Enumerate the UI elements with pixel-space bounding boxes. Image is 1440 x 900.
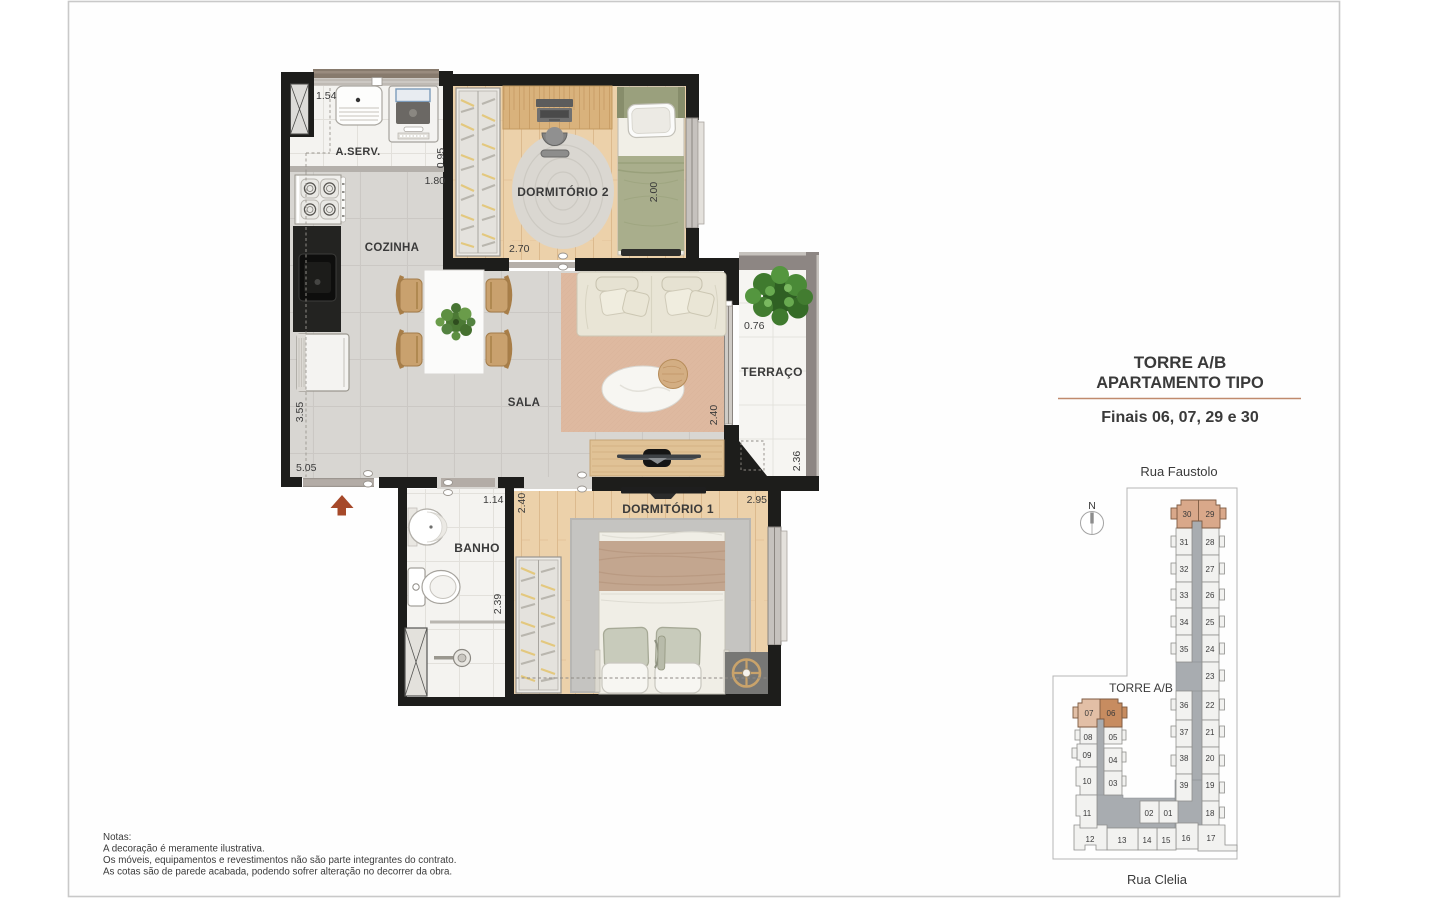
svg-text:20: 20 (1206, 754, 1215, 763)
svg-text:04: 04 (1109, 756, 1118, 765)
svg-text:32: 32 (1180, 565, 1189, 574)
svg-text:1.14: 1.14 (483, 494, 504, 506)
svg-text:2.00: 2.00 (648, 182, 660, 203)
svg-text:21: 21 (1206, 728, 1215, 737)
svg-text:DORMITÓRIO 1: DORMITÓRIO 1 (622, 501, 714, 516)
svg-text:3.55: 3.55 (294, 402, 306, 423)
svg-text:31: 31 (1180, 538, 1189, 547)
svg-text:10: 10 (1083, 777, 1092, 786)
svg-text:COZINHA: COZINHA (365, 242, 420, 254)
svg-text:07: 07 (1085, 709, 1094, 718)
svg-text:BANHO: BANHO (454, 541, 500, 555)
svg-text:TORRE A/B: TORRE A/B (1134, 353, 1227, 372)
svg-text:11: 11 (1083, 809, 1092, 818)
svg-text:1.80: 1.80 (425, 175, 446, 187)
svg-text:06: 06 (1107, 709, 1116, 718)
svg-text:15: 15 (1162, 836, 1171, 845)
svg-text:TERRAÇO: TERRAÇO (741, 365, 802, 379)
svg-text:0.76: 0.76 (744, 320, 765, 332)
svg-text:37: 37 (1180, 728, 1189, 737)
svg-text:As cotas são de parede acabada: As cotas são de parede acabada, podendo … (103, 867, 452, 878)
svg-text:SALA: SALA (508, 397, 541, 409)
svg-text:A.SERV.: A.SERV. (336, 146, 381, 158)
svg-text:N: N (1088, 500, 1096, 512)
svg-text:27: 27 (1206, 565, 1215, 574)
svg-text:14: 14 (1143, 836, 1152, 845)
svg-text:Rua Clelia: Rua Clelia (1127, 872, 1188, 887)
svg-text:17: 17 (1207, 834, 1216, 843)
svg-text:01: 01 (1164, 809, 1173, 818)
svg-text:34: 34 (1180, 618, 1189, 627)
svg-text:TORRE A/B: TORRE A/B (1109, 681, 1173, 695)
svg-text:2.36: 2.36 (791, 451, 803, 472)
svg-text:08: 08 (1084, 733, 1093, 742)
svg-text:2.95: 2.95 (747, 494, 768, 506)
svg-text:0.95: 0.95 (435, 148, 447, 169)
svg-text:12: 12 (1086, 835, 1095, 844)
svg-text:29: 29 (1206, 510, 1215, 519)
svg-text:DORMITÓRIO 2: DORMITÓRIO 2 (517, 184, 609, 199)
svg-text:36: 36 (1180, 701, 1189, 710)
svg-text:2.70: 2.70 (509, 243, 530, 255)
svg-text:22: 22 (1206, 701, 1215, 710)
svg-text:25: 25 (1206, 618, 1215, 627)
svg-text:2.40: 2.40 (516, 493, 528, 514)
svg-text:5.05: 5.05 (296, 462, 317, 474)
svg-text:1.54: 1.54 (316, 90, 337, 102)
svg-text:Finais 06, 07, 29 e 30: Finais 06, 07, 29 e 30 (1101, 409, 1259, 426)
svg-text:35: 35 (1180, 645, 1189, 654)
svg-text:33: 33 (1180, 591, 1189, 600)
svg-text:Notas:: Notas: (103, 832, 131, 843)
svg-text:38: 38 (1180, 754, 1189, 763)
svg-text:26: 26 (1206, 591, 1215, 600)
svg-text:39: 39 (1180, 781, 1189, 790)
svg-text:24: 24 (1206, 645, 1215, 654)
svg-text:02: 02 (1145, 809, 1154, 818)
svg-text:23: 23 (1206, 672, 1215, 681)
svg-text:30: 30 (1183, 510, 1192, 519)
svg-text:Rua Faustolo: Rua Faustolo (1140, 464, 1217, 479)
svg-text:Os móveis, equipamentos e reve: Os móveis, equipamentos e revestimentos … (103, 855, 456, 866)
svg-text:16: 16 (1182, 834, 1191, 843)
svg-text:18: 18 (1206, 809, 1215, 818)
svg-text:05: 05 (1109, 733, 1118, 742)
svg-text:2.39: 2.39 (492, 594, 504, 615)
svg-text:03: 03 (1109, 779, 1118, 788)
svg-text:2.40: 2.40 (708, 405, 720, 426)
svg-text:09: 09 (1083, 751, 1092, 760)
svg-text:A decoração é meramente ilustr: A decoração é meramente ilustrativa. (103, 844, 265, 855)
svg-text:13: 13 (1118, 836, 1127, 845)
svg-text:APARTAMENTO TIPO: APARTAMENTO TIPO (1096, 374, 1264, 392)
svg-text:28: 28 (1206, 538, 1215, 547)
svg-text:19: 19 (1206, 781, 1215, 790)
